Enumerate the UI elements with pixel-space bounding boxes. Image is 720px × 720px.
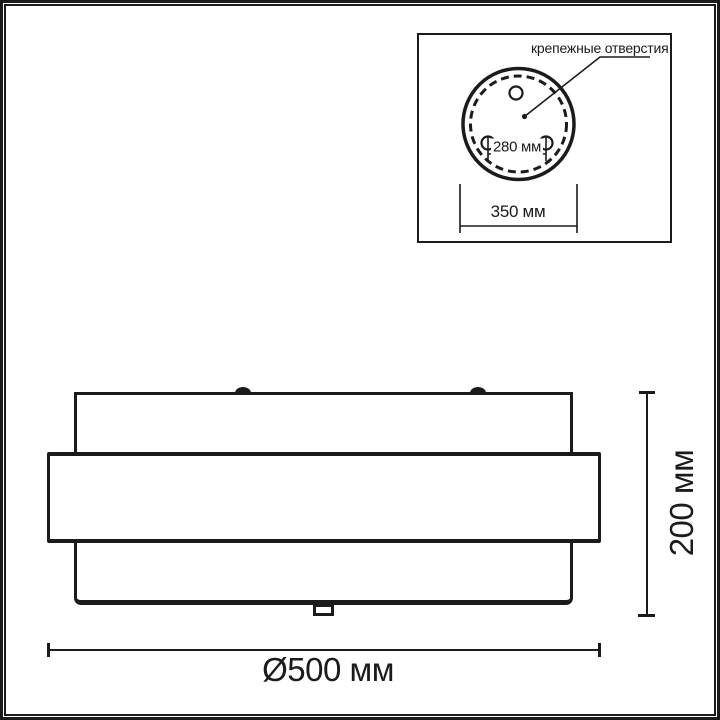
mounting-plate-inset-panel: крепежные отверстия 280 мм 350 мм	[417, 33, 672, 243]
technical-drawing-page: крепежные отверстия 280 мм 350 мм 200 мм…	[0, 0, 720, 720]
diameter-dimension-label: Ø500 мм	[262, 651, 394, 689]
height-dimension-label: 200 мм	[663, 450, 701, 557]
top-screw-right	[470, 387, 486, 393]
plate-diameter-dimension-label: 350 мм	[489, 202, 548, 222]
diameter-dimension-tick-left	[47, 643, 50, 657]
mounting-holes-label: крепежные отверстия	[531, 40, 669, 56]
diameter-dimension-tick-right	[598, 643, 601, 657]
leader-line	[525, 57, 651, 117]
lamp-outer-band	[47, 452, 601, 543]
mounting-hole-top	[510, 87, 523, 100]
height-dimension-tick-top	[639, 391, 655, 394]
top-screw-left	[235, 387, 251, 393]
height-dimension-tick-bottom	[638, 614, 655, 617]
bottom-latch	[313, 604, 334, 616]
mounting-plate-dashed-circle	[471, 76, 567, 172]
hole-spacing-dimension-label: 280 мм	[491, 139, 543, 156]
height-dimension-line	[646, 392, 648, 616]
mounting-plate-outline-circle	[463, 69, 574, 180]
